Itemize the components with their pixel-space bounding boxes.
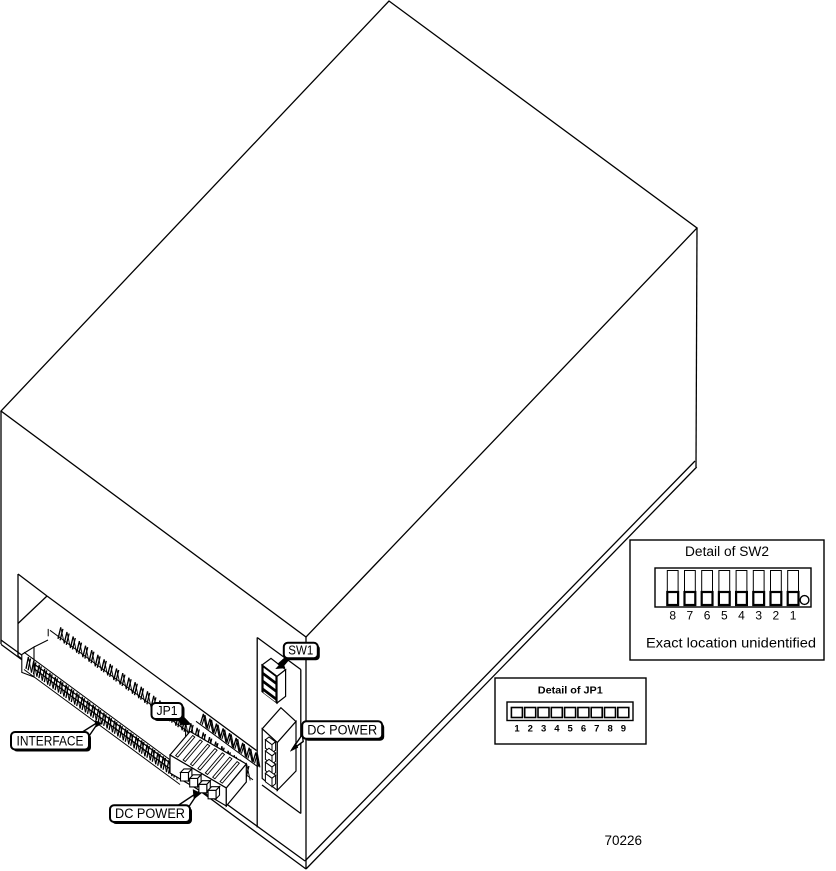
svg-text:Detail of SW2: Detail of SW2 <box>685 544 769 559</box>
svg-text:5: 5 <box>568 724 574 735</box>
svg-text:DC POWER: DC POWER <box>307 723 377 738</box>
svg-text:2: 2 <box>528 724 533 735</box>
svg-text:8: 8 <box>607 724 612 735</box>
svg-text:8: 8 <box>669 609 676 623</box>
svg-text:6: 6 <box>581 724 586 735</box>
svg-text:5: 5 <box>721 609 728 623</box>
svg-text:JP1: JP1 <box>157 703 178 718</box>
svg-text:4: 4 <box>738 609 745 623</box>
svg-text:4: 4 <box>554 724 560 735</box>
svg-text:1: 1 <box>514 724 520 735</box>
svg-text:7: 7 <box>594 724 599 735</box>
svg-text:SW1: SW1 <box>288 642 313 657</box>
svg-text:2: 2 <box>773 609 780 623</box>
svg-text:7: 7 <box>687 609 694 623</box>
svg-text:DC POWER: DC POWER <box>115 806 185 821</box>
svg-text:70226: 70226 <box>605 833 643 848</box>
svg-text:Exact location unidentified: Exact location unidentified <box>646 636 816 651</box>
svg-text:6: 6 <box>704 609 711 623</box>
svg-text:9: 9 <box>621 724 626 735</box>
svg-text:1: 1 <box>790 609 797 623</box>
svg-text:3: 3 <box>541 724 546 735</box>
svg-text:Detail of JP1: Detail of JP1 <box>538 686 603 697</box>
svg-text:3: 3 <box>755 609 762 623</box>
svg-text:INTERFACE: INTERFACE <box>17 734 84 749</box>
